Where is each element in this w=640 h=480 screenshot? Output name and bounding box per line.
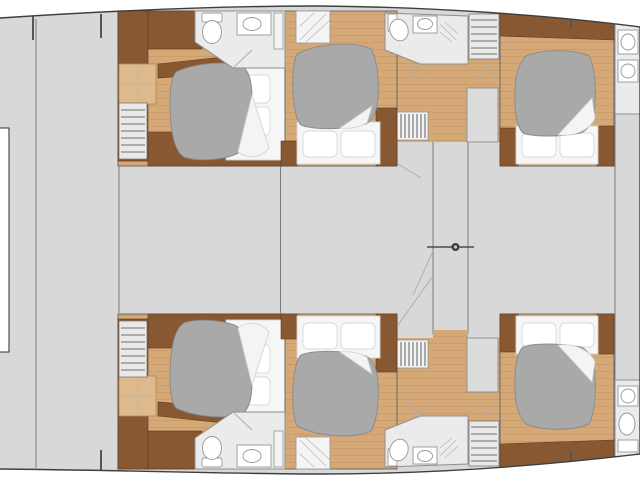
toilet-icon bbox=[203, 437, 222, 460]
pillow bbox=[303, 323, 337, 349]
double-bed bbox=[293, 44, 380, 164]
toilet-icon bbox=[203, 21, 222, 44]
bathroom-lower-right bbox=[615, 380, 640, 457]
cabin-lower-right bbox=[500, 314, 614, 467]
door-knob-center bbox=[454, 245, 457, 248]
companionway-stairs-lower bbox=[469, 421, 499, 466]
pillow bbox=[560, 133, 594, 157]
wardrobe bbox=[500, 128, 518, 166]
double-bed bbox=[170, 63, 285, 160]
louver-vent bbox=[397, 112, 428, 140]
toilet-bowl bbox=[621, 64, 635, 78]
pillow bbox=[341, 323, 375, 349]
cabin-upper-center bbox=[281, 11, 397, 166]
pillow bbox=[560, 323, 594, 347]
sink-icon bbox=[621, 34, 635, 50]
companionway-stairs-upper bbox=[469, 14, 499, 59]
pillow bbox=[303, 131, 337, 157]
shower-column bbox=[274, 13, 283, 49]
wardrobe bbox=[597, 314, 614, 354]
pillow bbox=[522, 323, 556, 347]
sink-icon bbox=[243, 18, 261, 31]
double-bed bbox=[293, 316, 380, 436]
louver-vent bbox=[397, 340, 428, 368]
toilet-icon bbox=[619, 413, 635, 435]
sink-icon bbox=[243, 450, 261, 463]
wardrobe bbox=[281, 314, 297, 339]
bathroom-upper-right bbox=[615, 24, 640, 114]
sink-icon bbox=[418, 19, 433, 30]
wardrobe bbox=[281, 141, 297, 166]
sink-icon bbox=[418, 451, 433, 462]
pillow bbox=[522, 133, 556, 157]
cabinet-top bbox=[618, 440, 638, 452]
wardrobe bbox=[500, 13, 614, 40]
double-bed bbox=[515, 51, 598, 164]
shower-stall bbox=[296, 437, 330, 469]
deck-hatch bbox=[0, 128, 9, 352]
floor-plan bbox=[0, 0, 640, 480]
wardrobe bbox=[500, 314, 518, 352]
double-bed bbox=[515, 316, 598, 429]
shower-column bbox=[274, 431, 283, 467]
wardrobe-panel bbox=[467, 88, 498, 142]
cabin-lower-center bbox=[281, 314, 397, 469]
wardrobe bbox=[597, 126, 614, 166]
wardrobe-panel bbox=[467, 338, 498, 392]
cabin-stairs bbox=[119, 103, 147, 159]
shower-stall bbox=[296, 11, 330, 43]
cabin-upper-right bbox=[500, 13, 614, 166]
floor-plan-canvas bbox=[0, 0, 640, 480]
pillow bbox=[341, 131, 375, 157]
double-bed bbox=[170, 320, 285, 417]
sink-icon bbox=[621, 389, 635, 403]
cabin-stairs bbox=[119, 321, 147, 377]
